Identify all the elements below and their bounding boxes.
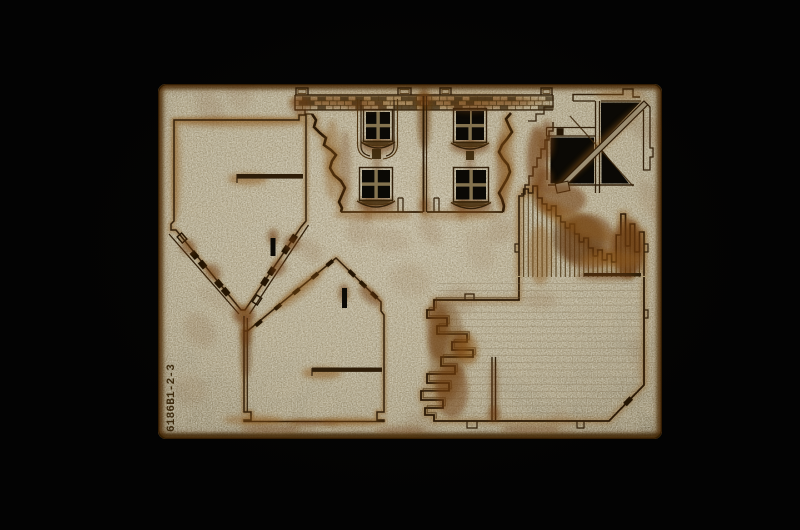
- svg-text:6186B1-2-3: 6186B1-2-3: [166, 364, 178, 432]
